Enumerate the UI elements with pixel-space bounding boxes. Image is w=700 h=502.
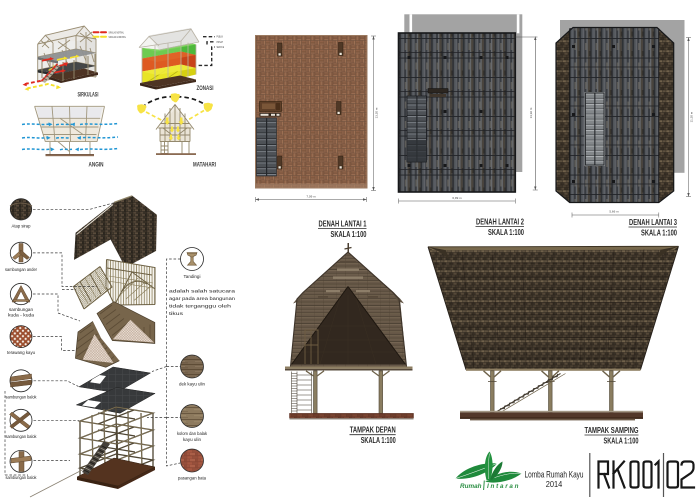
svg-text:SERVICE: SERVICE — [217, 45, 225, 49]
svg-text:SKALA 1:100: SKALA 1:100 — [361, 435, 396, 445]
svg-text:tidak terganggu oleh: tidak terganggu oleh — [169, 304, 232, 309]
svg-text:sambungan balok: sambungan balok — [6, 434, 38, 439]
svg-text:SKALA 1:100: SKALA 1:100 — [488, 227, 524, 237]
svg-text:SKALA 1:100: SKALA 1:100 — [641, 227, 677, 237]
svg-text:sambungan ander: sambungan ander — [5, 267, 37, 272]
svg-text:kuda - kuda: kuda - kuda — [8, 313, 34, 318]
svg-text:2014: 2014 — [546, 480, 563, 489]
svg-text:SIRKULASI: SIRKULASI — [78, 92, 99, 99]
svg-text:I n t a r a n: I n t a r a n — [487, 483, 519, 490]
svg-text:PUBLIK: PUBLIK — [217, 35, 224, 39]
svg-text:5,66 m: 5,66 m — [609, 210, 619, 214]
svg-text:agar pada area bangunan: agar pada area bangunan — [169, 296, 236, 301]
svg-text:tikus: tikus — [169, 311, 184, 316]
svg-text:DENAH LANTAI 1: DENAH LANTAI 1 — [319, 219, 367, 229]
svg-text:Tandingi: Tandingi — [184, 274, 201, 279]
svg-text:dek kayu ulin: dek kayu ulin — [179, 382, 205, 387]
svg-text:sambungan balok: sambungan balok — [6, 475, 38, 480]
svg-text:kayu ulin: kayu ulin — [183, 437, 201, 442]
svg-text:SIRKULASI VERTIKAL: SIRKULASI VERTIKAL — [109, 30, 125, 34]
svg-text:kolom dan balak: kolom dan balak — [177, 431, 208, 436]
svg-text:Lomba Rumah Kayu: Lomba Rumah Kayu — [525, 468, 584, 479]
svg-text:SKALA 1:100: SKALA 1:100 — [331, 229, 367, 239]
svg-text:DENAH LANTAI 3: DENAH LANTAI 3 — [629, 217, 677, 227]
svg-text:13,92 m: 13,92 m — [529, 107, 533, 118]
svg-text:SKALA 1:100: SKALA 1:100 — [604, 435, 639, 445]
svg-text:sambungan: sambungan — [9, 307, 33, 312]
svg-text:DENAH LANTAI 2: DENAH LANTAI 2 — [476, 217, 524, 227]
svg-text:ZONASI: ZONASI — [197, 85, 214, 92]
svg-text:7,09 m: 7,09 m — [306, 195, 316, 199]
svg-text:TAMPAK SAMPING: TAMPAK SAMPING — [585, 425, 639, 435]
svg-text:SIRKULASI HORIZONTAL: SIRKULASI HORIZONTAL — [109, 35, 127, 39]
svg-text:pasangan bata: pasangan bata — [178, 476, 206, 481]
svg-text:13,20 m: 13,20 m — [375, 107, 379, 118]
svg-text:adalah salah satucara: adalah salah satucara — [169, 289, 236, 294]
svg-text:11,30 m: 11,30 m — [690, 111, 694, 122]
svg-text:MATAHARI: MATAHARI — [193, 162, 216, 169]
svg-text:terawang kayu: terawang kayu — [7, 350, 35, 355]
svg-text:6,99 m: 6,99 m — [452, 196, 462, 200]
svg-text:sambungan balok: sambungan balok — [6, 395, 38, 400]
svg-text:PRIVAT: PRIVAT — [217, 40, 224, 44]
svg-text:TAMPAK DEPAN: TAMPAK DEPAN — [350, 425, 396, 435]
svg-text:Rumah: Rumah — [460, 483, 482, 490]
svg-text:ANGIN: ANGIN — [89, 162, 104, 169]
svg-text:Atap sirap: Atap sirap — [12, 224, 31, 229]
